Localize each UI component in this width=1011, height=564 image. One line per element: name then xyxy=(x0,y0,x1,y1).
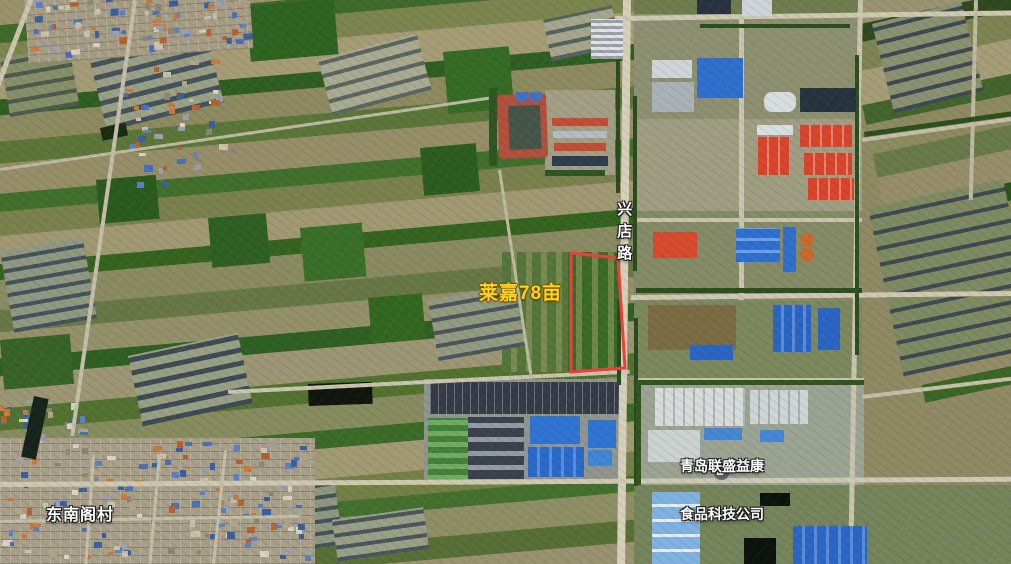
road-name-label: 兴店路 xyxy=(615,201,632,267)
satellite-map-canvas[interactable]: 莱嘉78亩 兴店路 青岛联盛益康 食品科技公司 东南阁村 xyxy=(0,0,1011,564)
parcel-boundary-polygon xyxy=(571,253,625,372)
annotation-overlay xyxy=(0,0,1011,564)
company-name-label: 青岛联盛益康 食品科技公司 xyxy=(652,426,792,554)
company-name-line2: 食品科技公司 xyxy=(652,506,792,522)
parcel-area-label: 莱嘉78亩 xyxy=(479,283,562,305)
company-name-line1: 青岛联盛益康 xyxy=(652,458,792,474)
village-name-label: 东南阁村 xyxy=(46,507,114,525)
